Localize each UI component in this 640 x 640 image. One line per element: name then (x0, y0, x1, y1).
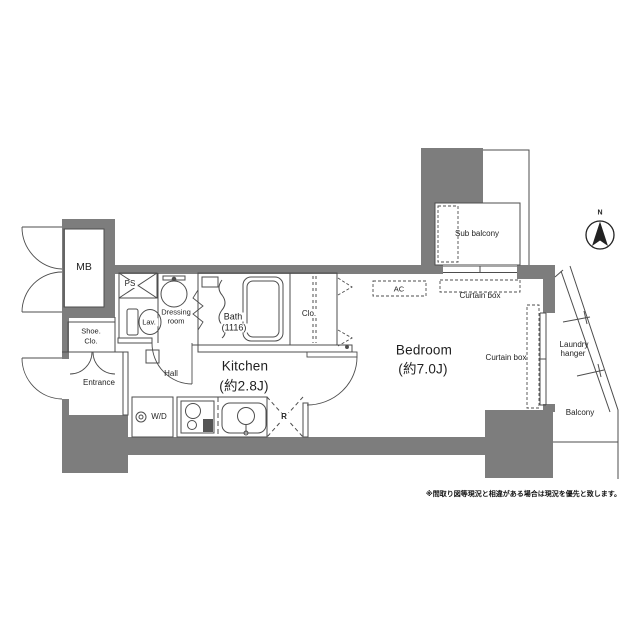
room-label-clo: Clo. (300, 310, 318, 318)
label-laundry-hanger-2: hanger (561, 350, 586, 358)
room-label-shoe-1: Shoe. (81, 327, 101, 335)
washer-hookup-icon (136, 412, 146, 422)
label-washer-dryer: W/D (151, 413, 167, 421)
windows (443, 265, 546, 405)
label-refrigerator: R (279, 413, 289, 421)
label-ac: AC (392, 285, 406, 293)
stove-burner-icon (186, 404, 201, 419)
room-label-lav: Lav. (140, 318, 158, 326)
balcony-outline (553, 266, 618, 479)
disclaimer-note: ※間取り図等現況と相違がある場合は現況を優先と致します。 (426, 489, 621, 499)
room-label-bath-1: Bath (222, 313, 245, 322)
compass-north-label: N (597, 210, 602, 217)
room-label-sub-balcony: Sub balcony (455, 230, 499, 238)
room-label-bedroom-size: (約7.0J) (398, 362, 447, 376)
toilet-tank (127, 309, 138, 335)
room-label-entrance: Entrance (83, 379, 115, 387)
room-label-dressing-2: room (167, 317, 184, 325)
curtain-box-right-outline (527, 305, 539, 408)
floor-plan: MB PS Dressing room Lav. Bath (1116) Clo… (0, 0, 640, 640)
room-label-bath-2: (1116) (220, 324, 249, 333)
compass-icon (586, 221, 614, 249)
room-label-ps: PS (123, 280, 138, 288)
label-laundry-hanger-1: Laundry (560, 341, 589, 349)
room-label-dressing-1: Dressing (161, 308, 191, 316)
grill (203, 419, 213, 432)
label-curtain-box-right: Curtain box (486, 354, 527, 362)
room-label-hall: Hall (164, 370, 178, 378)
label-curtain-box-top: Curtain box (460, 292, 501, 300)
washbasin-icon (161, 281, 187, 307)
room-label-kitchen-size: (約2.8J) (219, 379, 268, 393)
room-label-mb: MB (76, 262, 92, 273)
room-label-shoe-2: Clo. (84, 337, 97, 345)
room-label-balcony: Balcony (566, 409, 594, 417)
bathtub-icon (243, 277, 283, 341)
floor-plan-drawing (0, 0, 640, 640)
room-label-bedroom: Bedroom (396, 343, 452, 357)
stove-burner-icon (188, 421, 197, 430)
room-label-kitchen: Kitchen (222, 359, 268, 373)
